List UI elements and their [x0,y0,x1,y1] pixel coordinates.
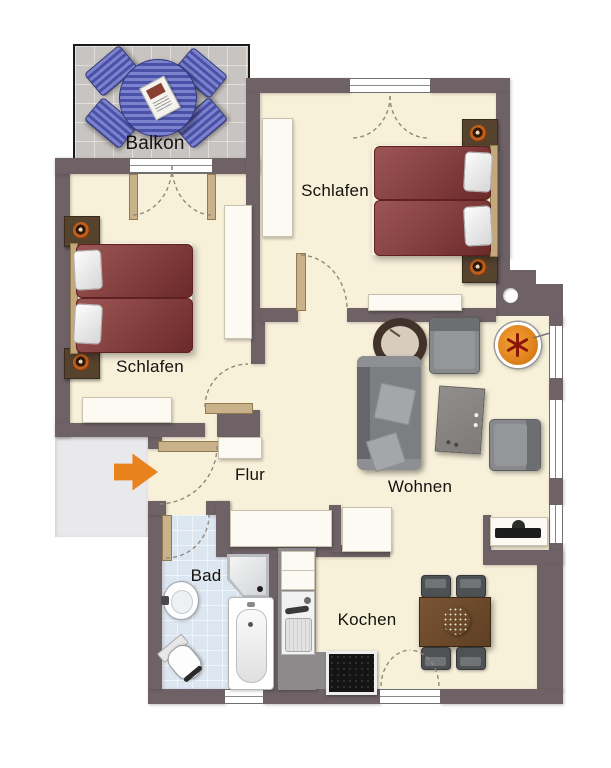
tub-faucet-icon [247,602,255,607]
exterior-patch [510,70,563,270]
tub-basin [236,609,267,683]
sofa-cushion [374,383,417,426]
bedside-lamp-icon [470,125,487,142]
wall-segment [55,423,205,437]
sideboard [82,397,172,423]
armchair-seat [494,424,527,466]
chair-seat [425,657,446,666]
kitchen-counter [278,652,330,689]
dining-chair [421,575,451,598]
tv-icon [495,528,541,538]
wall-segment [246,78,350,93]
wall-segment [496,93,510,258]
dining-chair [421,647,451,670]
sideboard [368,294,462,311]
sofa-back [357,356,370,470]
chair-seat [460,657,481,666]
balcony-door-leaf-right [207,174,216,220]
bedside-lamp-icon [73,222,90,239]
room-label-kitchen: Kochen [307,610,427,630]
exterior-patch [536,270,563,284]
window-living-3 [549,505,563,543]
armchair-back [430,318,479,331]
tv-lowboard [490,517,548,546]
wall-segment [55,158,130,174]
sofa-armrest [357,356,421,367]
wall-segment [55,158,70,437]
wall-segment [260,308,298,322]
sink-dial-icon [304,597,311,604]
armchair [489,419,541,471]
closet [230,510,332,547]
wall-segment [537,565,563,691]
entrance-door-leaf [158,441,220,452]
floor-plan: Balkon Schlafen Schlafen Flur Wohnen Bad… [0,0,611,768]
pillow [73,249,103,290]
wall-segment [430,78,510,93]
bedroom-top-door-leaf [296,253,306,311]
window-kitchen [380,689,440,704]
closet [218,437,262,459]
wall-segment [216,501,230,557]
wall-porthole [503,288,518,303]
window-living-2 [549,400,563,478]
basin-tap-icon [161,596,169,605]
exterior-patch [0,0,73,160]
wall-segment [440,689,563,704]
balcony-door-leaf-left [129,174,138,220]
table-knob [474,413,478,417]
wall-segment [148,501,166,515]
pillow [463,151,493,192]
wall-segment [251,322,265,364]
wall-segment [549,316,563,326]
dining-chair [456,647,486,670]
tub-drain-icon [248,622,253,627]
hanging-orange-seat [495,322,541,368]
table-knob [454,443,458,447]
wall-segment [483,550,563,565]
armchair [429,317,480,374]
bedside-lamp-icon [73,354,90,371]
balcony-door-threshold [130,158,212,174]
vase-twig [390,329,401,338]
table-knob [474,423,478,427]
cabinet-line [282,570,314,571]
coffee-table [435,385,485,454]
wall-segment [549,478,563,505]
table-knob [446,440,450,444]
wall-segment [549,378,563,400]
closet [342,507,392,552]
faucet-icon [285,605,310,614]
pillow [73,303,103,344]
room-label-bedroom-left: Schlafen [90,357,210,377]
basin-bowl [171,590,193,614]
room-label-bathroom: Bad [166,566,246,586]
bathtub [228,597,274,690]
room-label-bedroom-top: Schlafen [275,181,395,201]
chair-seat [425,579,446,588]
pillow [463,205,493,246]
bedside-lamp-icon [470,259,487,276]
wardrobe [224,205,252,339]
sofa [357,356,421,470]
wardrobe [262,118,293,237]
cooktop [326,651,377,695]
room-label-balcony: Balkon [95,133,215,155]
fridge-cabinet [281,551,315,590]
shower-drain-icon [257,586,263,592]
table-plant [443,607,470,635]
tv-stand-icon [512,520,525,528]
chair-seat [460,579,481,588]
armchair-seat [434,331,475,369]
double-bed [70,243,192,352]
washbasin [163,581,199,620]
exterior-patch [55,537,148,704]
armchair-back [526,420,540,470]
window-living-1 [549,326,563,378]
window-bedroom-top [350,78,430,93]
window-bathroom [225,689,263,704]
bedroom-left-door-leaf [205,403,253,414]
room-label-living: Wohnen [360,477,480,497]
wall-segment [217,410,260,437]
room-label-hall: Flur [200,465,300,485]
magazine-lines [153,95,173,113]
bathroom-door-leaf [162,515,172,561]
dining-chair [456,575,486,598]
wall-segment [148,689,225,704]
